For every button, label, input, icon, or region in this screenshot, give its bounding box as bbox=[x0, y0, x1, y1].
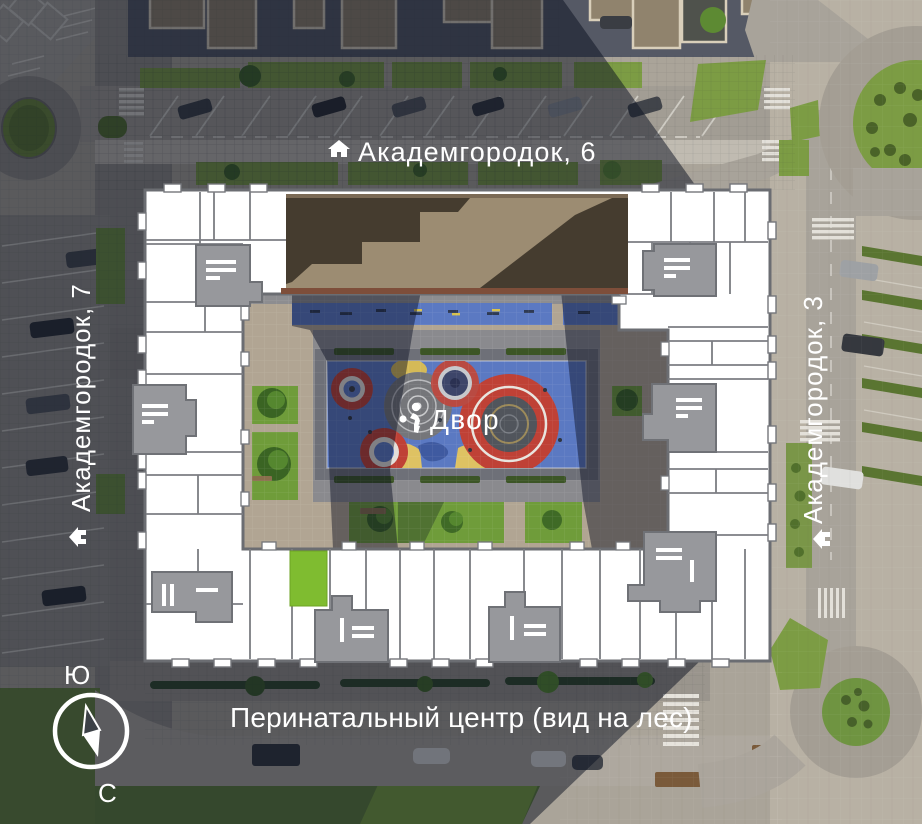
svg-text:Академгородок, 3: Академгородок, 3 bbox=[798, 295, 828, 524]
svg-text:Ю: Ю bbox=[64, 660, 90, 690]
svg-text:Двор: Двор bbox=[430, 404, 500, 435]
svg-text:Перинатальный центр (вид на ле: Перинатальный центр (вид на лес) bbox=[230, 702, 693, 733]
svg-text:Академгородок, 6: Академгородок, 6 bbox=[358, 137, 597, 167]
svg-text:Академгородок, 7: Академгородок, 7 bbox=[66, 283, 96, 512]
svg-text:С: С bbox=[98, 778, 117, 808]
